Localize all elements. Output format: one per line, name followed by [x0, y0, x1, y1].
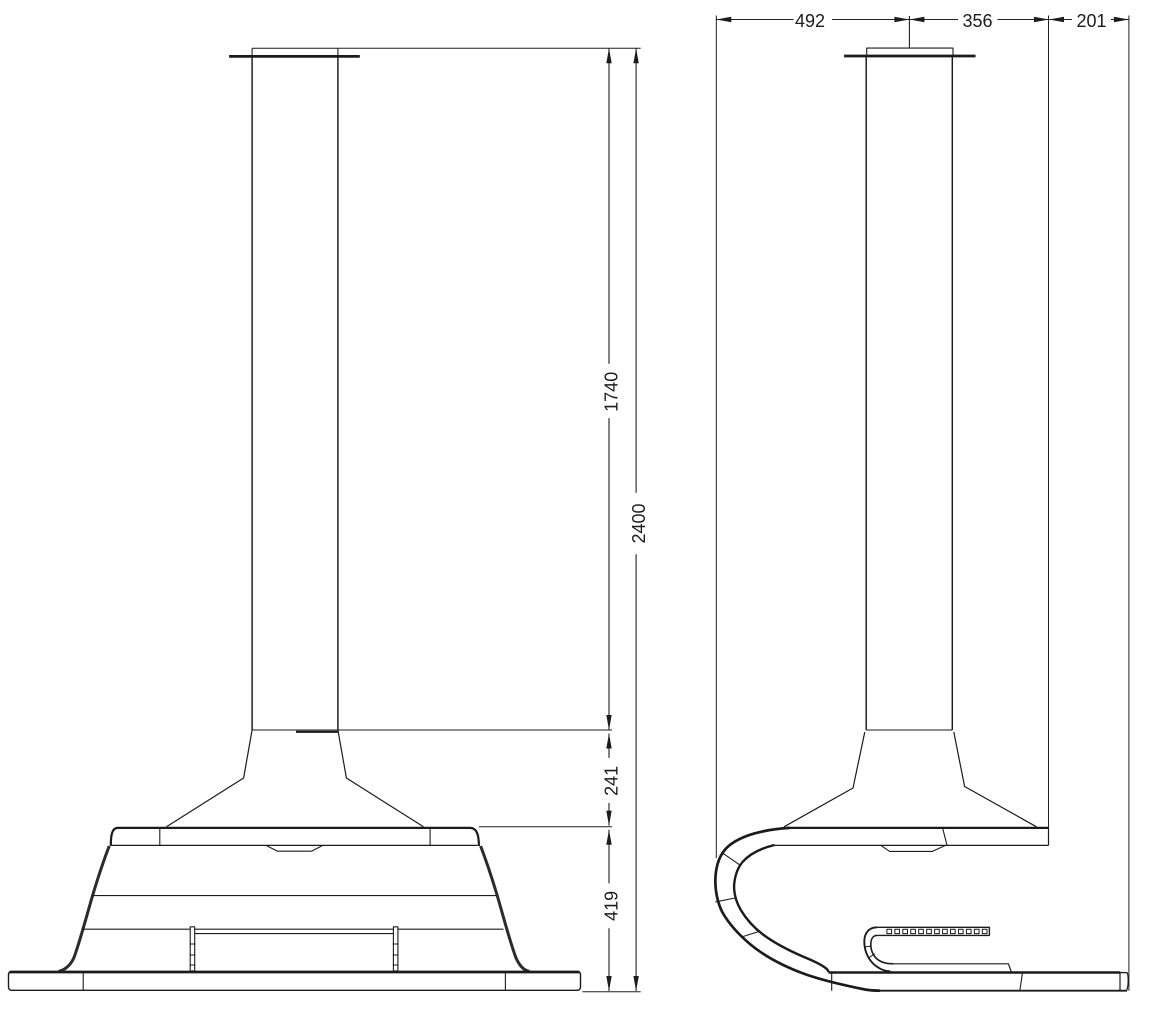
- svg-text:1740: 1740: [602, 372, 622, 412]
- svg-text:356: 356: [962, 11, 992, 31]
- svg-text:201: 201: [1076, 11, 1106, 31]
- svg-text:241: 241: [602, 766, 622, 796]
- svg-text:492: 492: [795, 11, 825, 31]
- svg-text:2400: 2400: [629, 503, 649, 543]
- svg-text:419: 419: [602, 891, 622, 921]
